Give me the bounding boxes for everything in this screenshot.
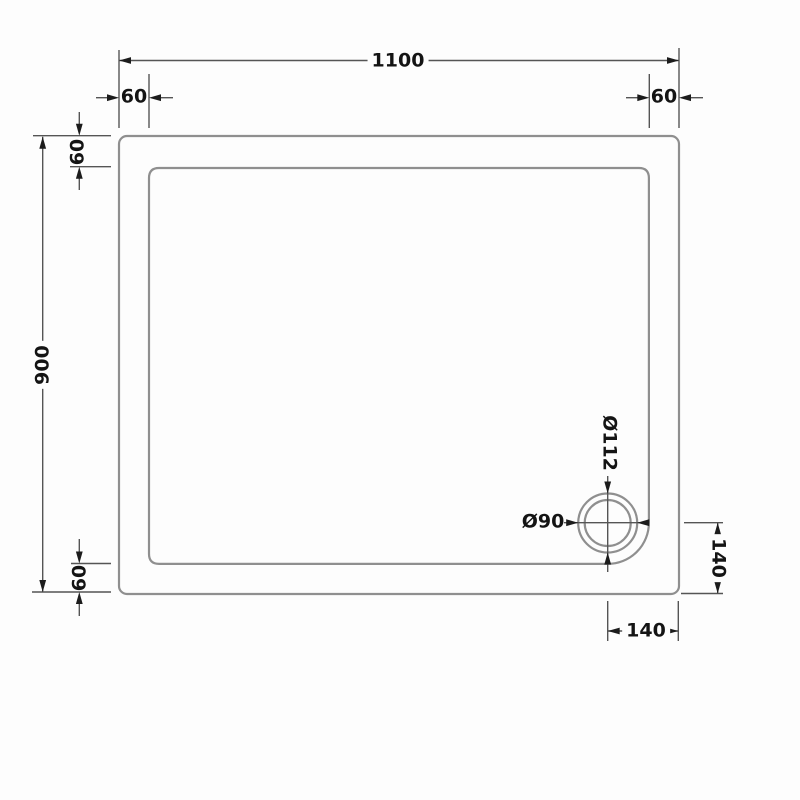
arrowhead-60tr-right — [679, 94, 691, 101]
arrowhead-60tr-left — [637, 94, 649, 101]
drawing-svg — [0, 0, 800, 800]
shower-tray-technical-drawing: 1100 60 60 60 900 60 Ø112 Ø90 140 140 — [0, 0, 800, 800]
arrowhead-60lt-top — [76, 124, 83, 136]
arrowhead-60lb-bottom — [76, 592, 83, 604]
tray-outer-edge — [119, 136, 679, 594]
dim-waste-from-bottom-label: 140 — [622, 621, 670, 642]
arrowhead-140r-bottom — [714, 582, 721, 594]
dim-edge-left-top-label: 60 — [69, 139, 88, 165]
arrowhead-140b-left — [608, 628, 620, 635]
dim-edge-top-left-label: 60 — [121, 87, 147, 106]
arrowhead-1100-right — [667, 57, 679, 64]
arrowhead-1100-left — [119, 57, 131, 64]
dim-waste-outer-diameter-label: Ø112 — [599, 415, 618, 471]
dim-waste-from-right-label: 140 — [707, 534, 728, 582]
dim-edge-left-bottom-label: 60 — [70, 564, 89, 590]
dim-edge-top-right-label: 60 — [651, 87, 677, 106]
dim-overall-width-label: 1100 — [368, 50, 429, 71]
arrowhead-60tl-right — [149, 94, 161, 101]
arrowhead-60lt-bottom — [76, 167, 83, 179]
arrowhead-140r-top — [714, 523, 721, 535]
arrowhead-60lb-top — [76, 552, 83, 564]
dim-waste-inner-diameter-label: Ø90 — [522, 512, 565, 531]
dim-overall-height-label: 900 — [32, 341, 53, 389]
arrowhead-900-bottom — [39, 580, 46, 592]
arrowhead-900-top — [39, 137, 46, 149]
arrowhead-60tl-left — [107, 94, 119, 101]
shower-tray — [119, 136, 679, 594]
